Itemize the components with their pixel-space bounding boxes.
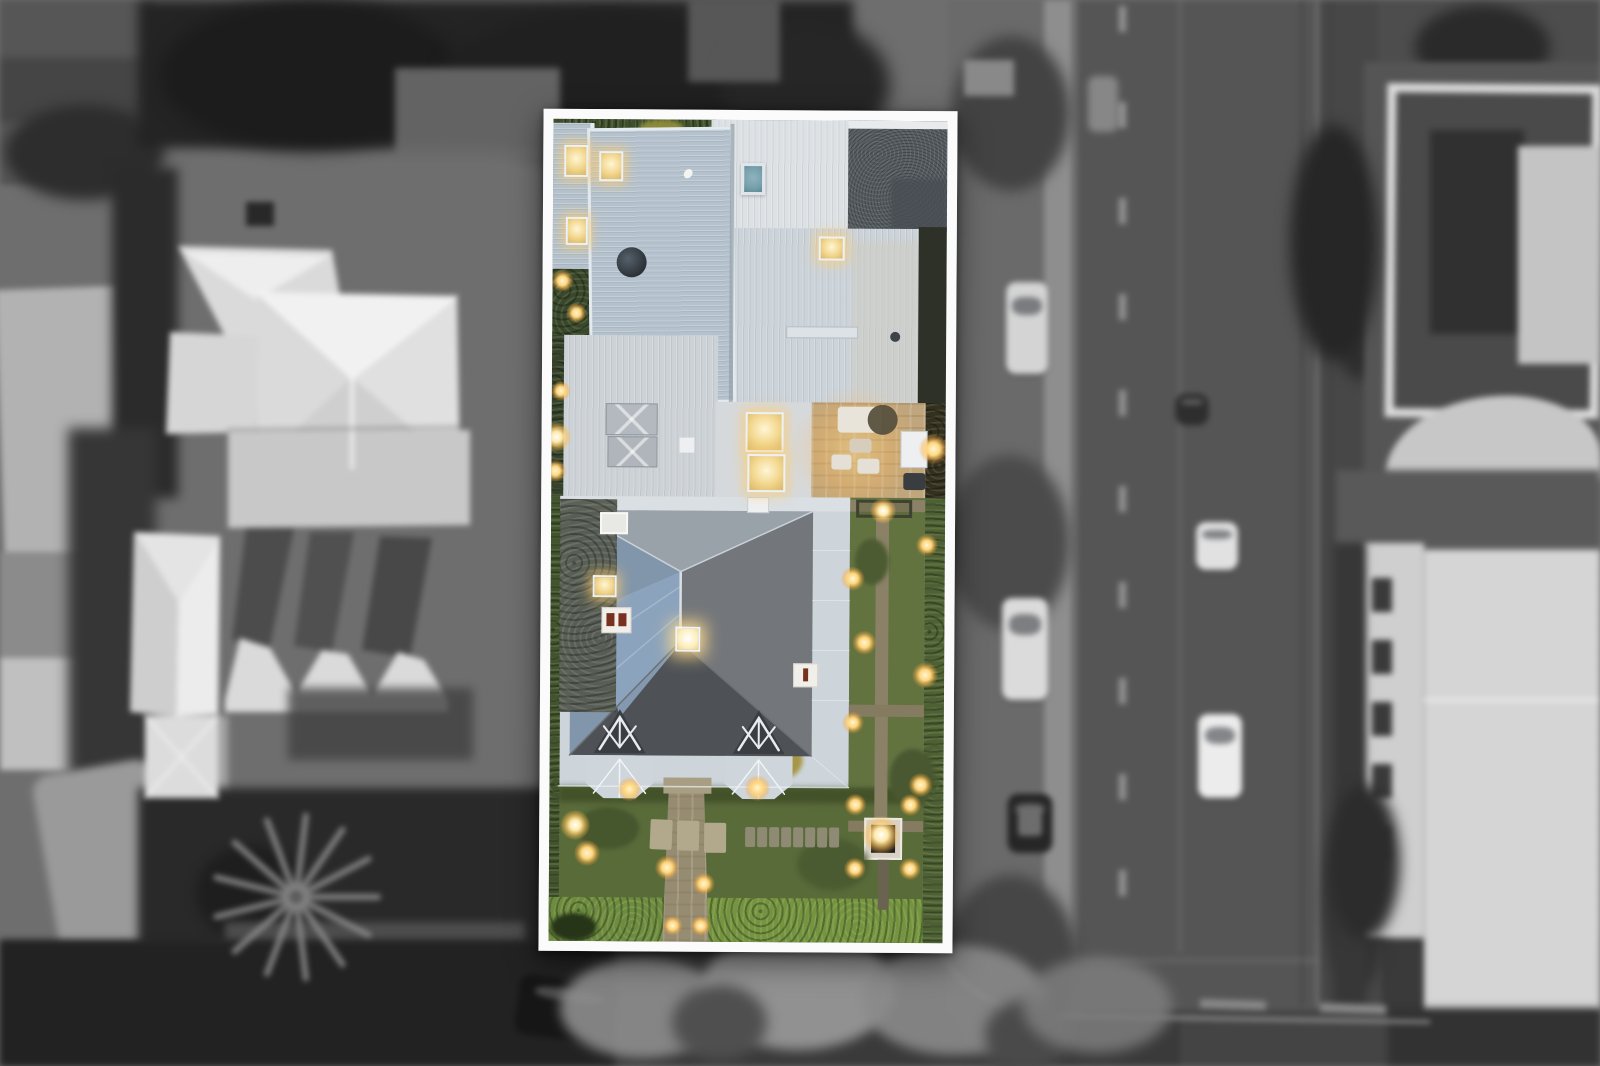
highlighted-property-photo (548, 119, 947, 943)
patio-table (849, 439, 871, 453)
garden-light (541, 422, 571, 452)
garden-light (574, 840, 600, 866)
garden-light (693, 873, 715, 895)
satellite-dish (617, 247, 647, 277)
stepping-stone-large (704, 823, 726, 853)
fountain-corner-light (844, 794, 866, 816)
pergola-light (870, 498, 896, 524)
chimney-pot (619, 613, 626, 626)
garden-light (852, 631, 876, 655)
chimney (601, 607, 631, 633)
garden-light (841, 567, 865, 591)
patio-chair (857, 459, 879, 474)
chimney-pot (607, 613, 614, 626)
skylight-a1 (564, 145, 588, 177)
stepping-stone (805, 827, 815, 847)
ac-unit-2 (607, 436, 657, 467)
fountain-corner-light (899, 794, 921, 816)
property-details-lights (548, 119, 947, 943)
garden-light (551, 270, 573, 292)
chimney2 (793, 663, 818, 687)
roof-box-white (679, 438, 694, 453)
stepping-stone-large (650, 819, 673, 850)
verandah-shadow (288, 688, 473, 760)
ac-unit-1 (606, 403, 658, 435)
street-tree (1022, 958, 1172, 1053)
stepping-stone (781, 827, 791, 847)
fountain-corner-light (899, 858, 921, 880)
garden-light (551, 381, 571, 401)
stepping-stone (829, 828, 839, 848)
bbq-grill (903, 473, 925, 490)
stepping-stone (757, 827, 767, 847)
stepping-stone-large (677, 820, 700, 851)
aerial-photograph (0, 0, 1600, 1066)
garden-light (842, 712, 864, 734)
garden-light (544, 460, 566, 482)
gate-light (691, 916, 711, 936)
house-skylight-box (600, 512, 628, 534)
garden-light (744, 775, 770, 801)
garden-light (916, 534, 938, 556)
skylight-a2 (566, 217, 588, 245)
stepping-stone (817, 827, 827, 847)
garden-light (912, 662, 938, 688)
garden-light (617, 777, 641, 801)
patio-chair (831, 455, 851, 470)
stepping-stone (769, 827, 779, 847)
garden-light (566, 303, 586, 323)
skylight-e (819, 236, 845, 260)
chimney-pot (803, 669, 809, 681)
stepping-stone (793, 827, 803, 847)
garden-light (560, 810, 590, 840)
skylight-h2 (747, 454, 785, 492)
ridge-vent-bar (786, 326, 858, 338)
roof-ac-unit (747, 497, 769, 513)
house-skylight-lit (593, 575, 617, 597)
garden-light (655, 855, 679, 879)
stepping-stone (745, 827, 755, 847)
skylight-h1 (745, 412, 783, 452)
house-skylight-center (675, 627, 700, 652)
gate-light (663, 915, 683, 935)
garden-light (918, 434, 948, 464)
skylight-b (599, 151, 623, 181)
roof-vent (890, 332, 900, 342)
street-tree-dark (672, 985, 767, 1060)
skylight-c (741, 163, 765, 195)
highlighted-property-frame (538, 109, 957, 954)
fountain-light (862, 816, 900, 854)
fountain-corner-light (844, 858, 866, 880)
patio-umbrella (868, 405, 898, 435)
roof-bird (682, 167, 695, 180)
